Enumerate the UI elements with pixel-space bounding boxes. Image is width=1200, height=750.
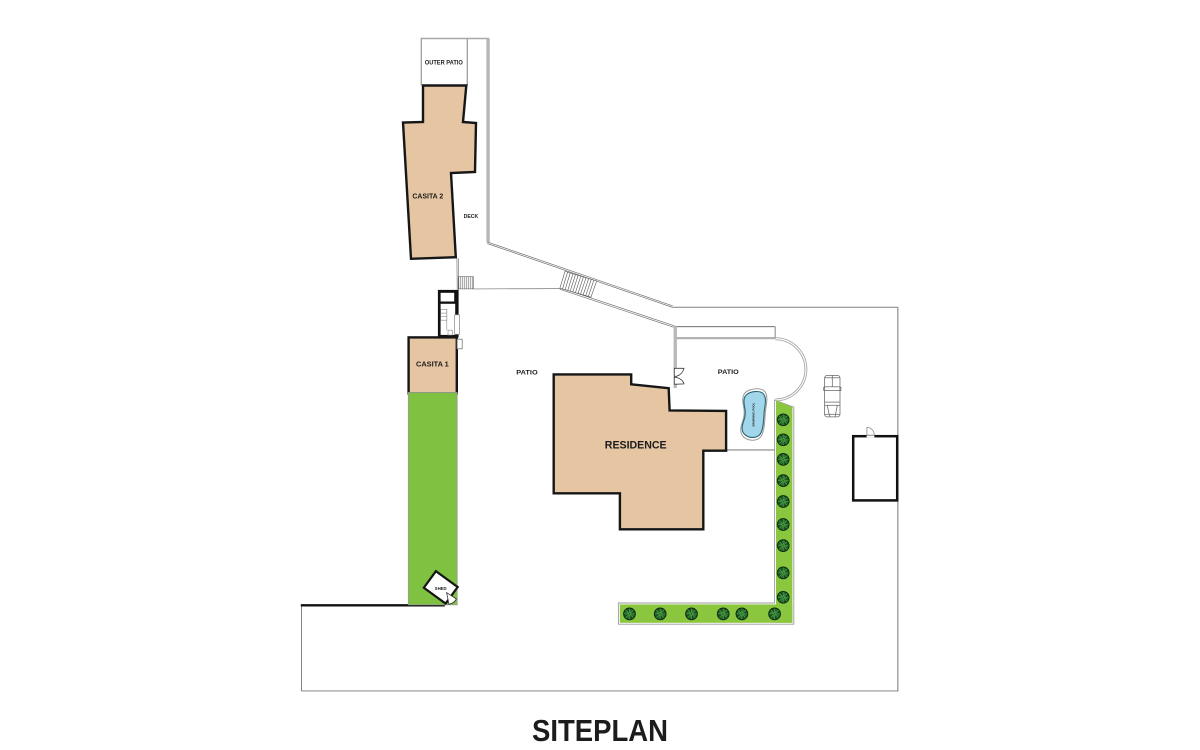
svg-text:PATIO: PATIO xyxy=(718,369,739,376)
svg-text:RESIDENCE: RESIDENCE xyxy=(605,440,667,452)
svg-text:DECK: DECK xyxy=(464,214,479,220)
svg-text:SWIMMING POOL: SWIMMING POOL xyxy=(752,402,756,426)
svg-text:OUTER PATIO: OUTER PATIO xyxy=(425,59,463,66)
svg-text:CASITA 2: CASITA 2 xyxy=(412,191,443,200)
svg-text:CASITA 1: CASITA 1 xyxy=(416,359,450,368)
svg-text:PATIO: PATIO xyxy=(516,369,537,376)
svg-text:SITEPLAN: SITEPLAN xyxy=(532,714,668,748)
svg-text:SHED: SHED xyxy=(435,586,447,591)
